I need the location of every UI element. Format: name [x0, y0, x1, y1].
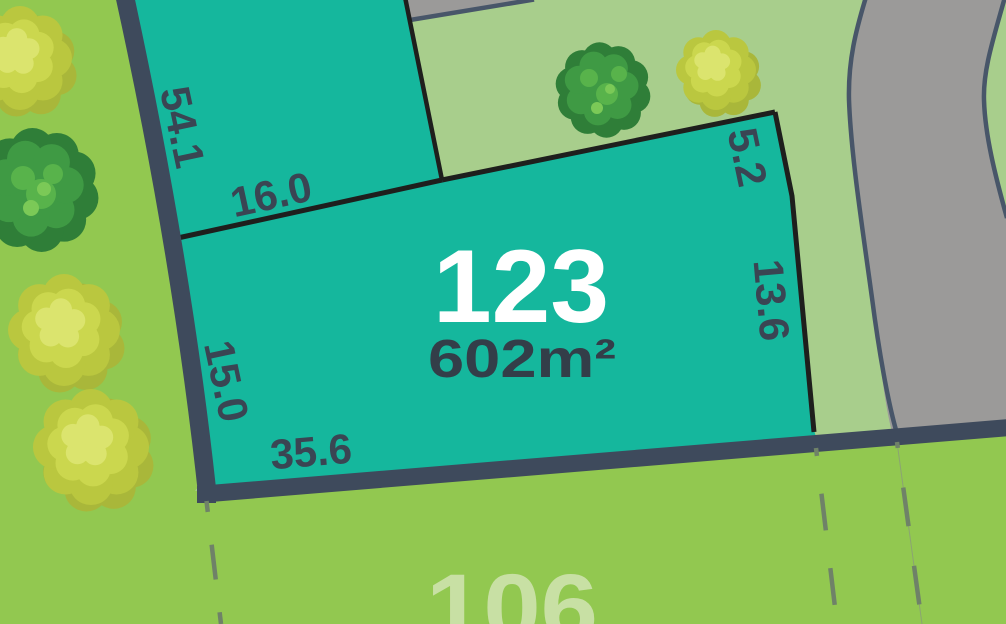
svg-text:602m²: 602m² [428, 329, 616, 389]
svg-text:123: 123 [433, 229, 609, 345]
svg-text:106: 106 [426, 555, 598, 624]
svg-text:13.6: 13.6 [745, 257, 799, 343]
svg-text:35.6: 35.6 [268, 425, 353, 479]
